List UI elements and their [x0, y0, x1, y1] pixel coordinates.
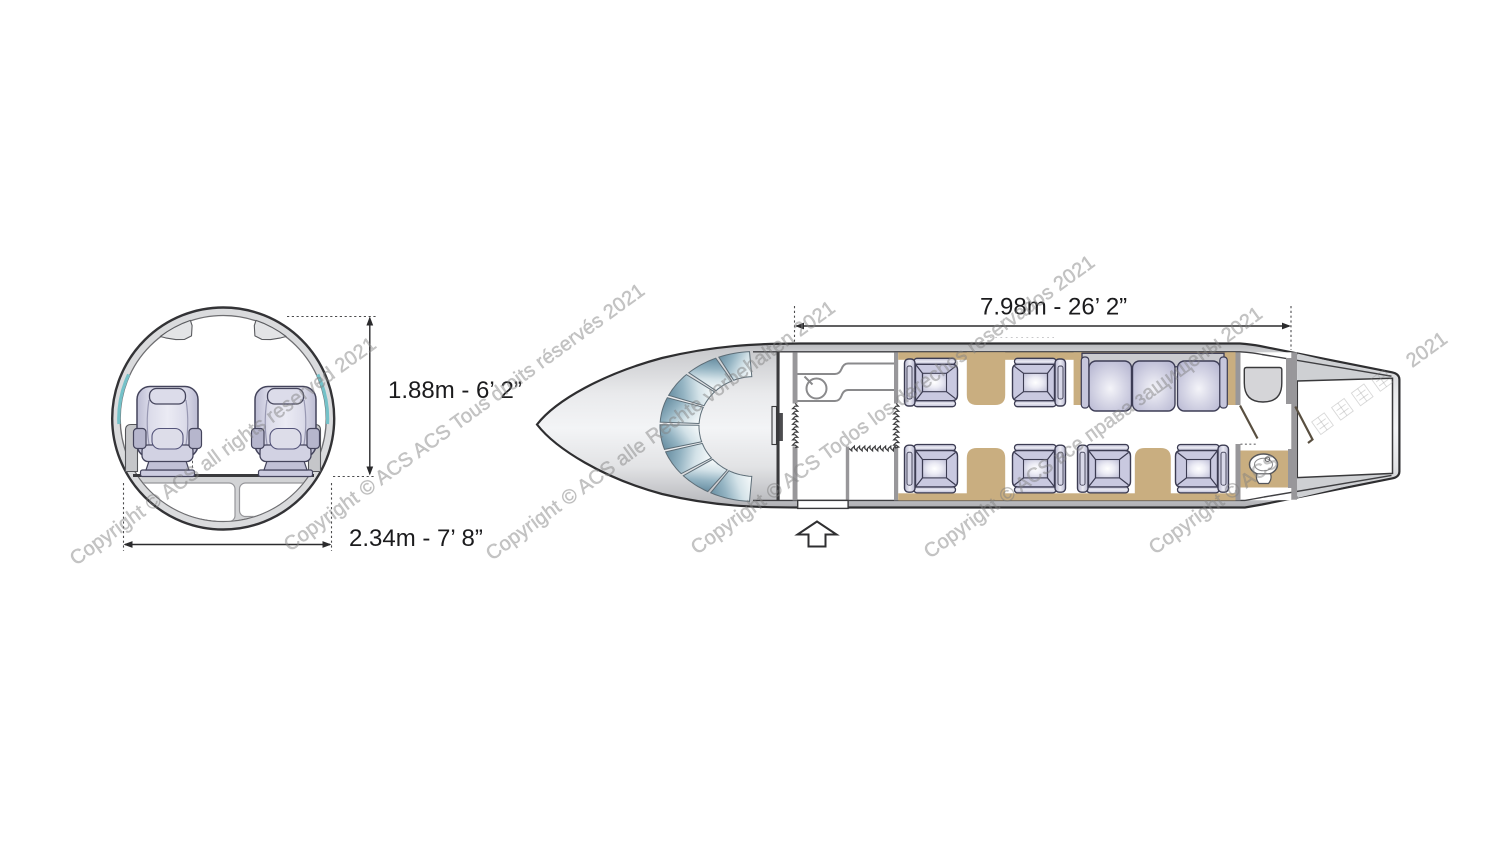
svg-text:2.34m - 7’ 8”: 2.34m - 7’ 8”	[349, 525, 483, 552]
svg-text:2021: 2021	[1402, 328, 1452, 372]
